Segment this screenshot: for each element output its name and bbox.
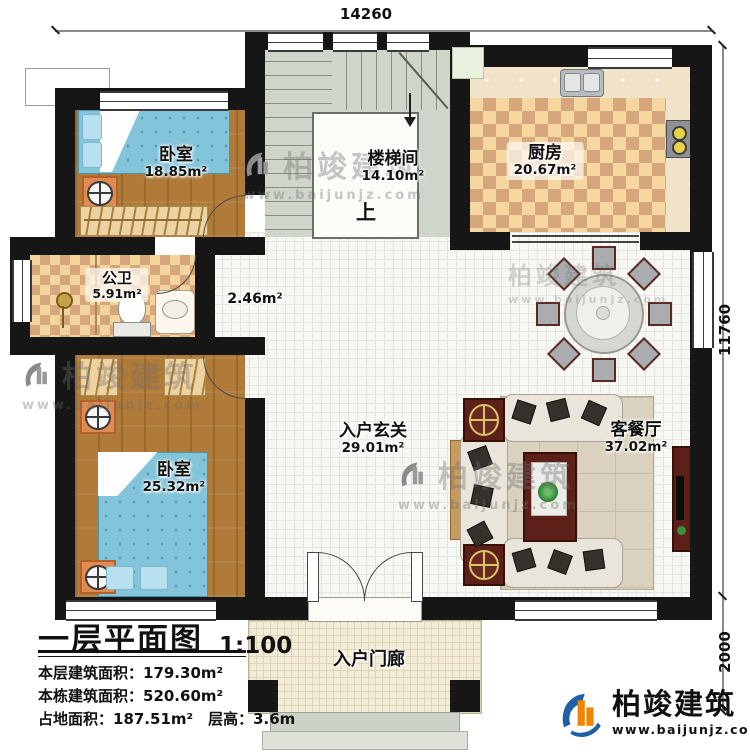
window-bathroom [12, 260, 32, 322]
room-name: 楼梯间 [362, 150, 425, 169]
end-table-bottom [463, 544, 505, 586]
watermark-url: www.baijunjz.com [22, 398, 203, 413]
kitchen-corner-window [452, 47, 484, 79]
room-label-nook: 2.46m² [227, 292, 282, 307]
brand-text-block: 柏竣建筑 www.baijunjz.com [612, 690, 750, 737]
title-line-1: 本层建筑面积：179.30m² [38, 662, 223, 683]
stove-burner-1 [672, 126, 687, 141]
dimension-right-value: 11760 [716, 300, 732, 360]
porch-step-2 [262, 731, 468, 750]
window-kitchen-top [588, 47, 672, 69]
brand-logo-icon [398, 457, 432, 491]
dimension-top-value: 14260 [330, 5, 402, 23]
porch-column-right [450, 680, 480, 712]
entrance-door-leaf-left [307, 552, 319, 602]
decor-icon [469, 404, 500, 436]
room-label-bedroom-bottom: 卧室 25.32m² [143, 461, 206, 495]
brand-url: www.baijunjz.com [612, 722, 750, 737]
shower-head-icon [56, 292, 73, 309]
kitchen-sink-basin-1 [564, 73, 581, 92]
bed-top-pillow-1 [82, 114, 102, 140]
bed-bottom-pillow-2 [140, 566, 168, 590]
tv-icon [676, 476, 684, 520]
window-dining-right [692, 252, 714, 348]
room-label-stairwell: 楼梯间 14.10m² [362, 150, 425, 184]
room-area: 5.91m² [92, 287, 141, 301]
room-label-porch: 入户门廊 [333, 650, 405, 670]
room-area: 20.67m² [514, 163, 577, 178]
watermark-url: www.baijunjz.com [508, 293, 668, 306]
stair-direction-arrow [409, 93, 411, 119]
entrance-door-leaf-right [411, 552, 423, 602]
window-stair-2 [333, 32, 377, 52]
watermark-url: www.baijunjz.com [398, 498, 579, 513]
brand-logo-icon [556, 686, 604, 740]
toilet-tank [113, 322, 151, 337]
window-stair-1 [268, 32, 323, 52]
title-rule [38, 650, 246, 657]
watermark-url: www.baijunjz.com [243, 188, 424, 203]
watermark: 柏竣建筑 www.baijunjz.com [22, 352, 203, 413]
stair-flight-top [332, 48, 450, 110]
room-label-bedroom-top: 卧室 18.85m² [145, 146, 208, 180]
wardrobe-top-rod [84, 219, 202, 221]
sofa-cushion [583, 549, 606, 572]
decor-icon [469, 550, 500, 581]
room-name: 入户玄关 [339, 422, 407, 441]
watermark-name: 柏竣建筑 [508, 256, 620, 291]
wall-kitchen-bottom-a [450, 232, 510, 250]
wall-bath-top-b [195, 237, 265, 255]
title-line-2: 本栋建筑面积：520.60m² [38, 685, 223, 706]
room-name: 客餐厅 [605, 421, 668, 440]
room-name: 卧室 [143, 461, 206, 480]
nightstand-top [82, 176, 118, 210]
room-label-bathroom: 公卫 5.91m² [85, 268, 148, 302]
room-area: 37.02m² [605, 440, 668, 455]
window-living-bottom [515, 600, 657, 621]
porch-step-1 [270, 712, 460, 733]
dining-chair [592, 358, 616, 382]
shower-stem [62, 306, 64, 328]
room-area: 29.01m² [339, 441, 407, 456]
room-area: 14.10m² [362, 169, 425, 184]
wall-divider-pier [245, 337, 265, 355]
watermark-name: 柏竣建筑 [62, 352, 198, 396]
wall-top-kitchen [450, 45, 712, 67]
room-area: 2.46m² [227, 292, 282, 307]
dimension-right-lower-value: 2000 [716, 622, 732, 682]
bed-top-pillow-2 [82, 142, 102, 168]
kitchen-slider-rail-1 [512, 235, 639, 237]
window-bedroom-top [100, 91, 228, 111]
room-name: 公卫 [92, 270, 141, 287]
watermark-name: 柏竣建筑 [438, 452, 574, 496]
lamp-icon [87, 181, 113, 206]
brand-name: 柏竣建筑 [612, 690, 750, 719]
wall-left-upper [55, 88, 75, 237]
room-label-living-dining: 客餐厅 37.02m² [605, 421, 668, 455]
room-label-kitchen: 厨房 20.67m² [507, 142, 584, 180]
room-name: 入户门廊 [333, 650, 405, 670]
stair-up-label: 上 [356, 196, 376, 225]
kitchen-slider-rail-2 [512, 241, 639, 243]
end-table-top [463, 398, 505, 442]
wardrobe-top [80, 206, 208, 236]
tv-plant-icon [677, 526, 686, 535]
wall-bath-top-a [10, 237, 155, 255]
room-name: 厨房 [514, 144, 577, 163]
brand-footer: 柏竣建筑 www.baijunjz.com [556, 686, 750, 740]
room-label-foyer: 入户玄关 29.01m² [339, 422, 407, 456]
room-area: 18.85m² [145, 165, 208, 180]
window-stair-3 [387, 32, 429, 52]
room-area: 25.32m² [143, 480, 206, 495]
bed-bottom-pillow-1 [106, 566, 134, 590]
watermark: 柏竣建筑 www.baijunjz.com [398, 452, 579, 513]
title-line-3: 占地面积：187.51m² 层高：3.6m [38, 708, 295, 729]
sink-basin [162, 300, 188, 319]
stove-burner-2 [672, 140, 687, 155]
brand-logo-icon [243, 147, 277, 181]
wall-divider-lower [245, 398, 265, 597]
watermark: 柏竣建筑 www.baijunjz.com [508, 256, 668, 306]
wall-bath-east [195, 255, 215, 337]
stair-arrow-head [404, 117, 416, 127]
dimension-line-top [55, 30, 712, 32]
room-name: 卧室 [145, 146, 208, 165]
kitchen-sink-basin-2 [583, 73, 600, 92]
dining-table-center [596, 306, 610, 320]
floor-plan-page: 卧室 18.85m² 楼梯间 14.10m² 上 厨房 20.67m² 公卫 5… [0, 0, 750, 754]
brand-logo-icon [22, 357, 56, 391]
